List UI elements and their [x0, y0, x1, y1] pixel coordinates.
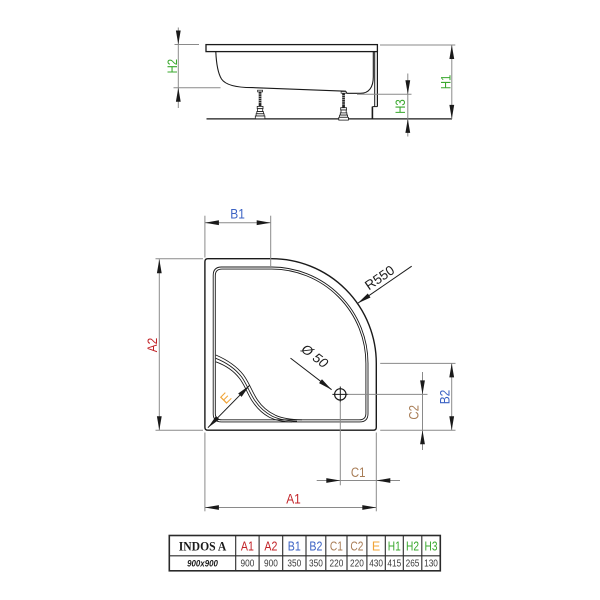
svg-text:A1: A1: [286, 492, 301, 507]
svg-text:A2: A2: [264, 540, 277, 554]
svg-text:900: 900: [264, 559, 278, 570]
svg-text:350: 350: [309, 559, 323, 570]
svg-text:415: 415: [387, 559, 401, 570]
svg-text:130: 130: [424, 559, 438, 570]
svg-text:A1: A1: [241, 540, 254, 554]
svg-text:350: 350: [287, 559, 301, 570]
svg-text:E: E: [372, 540, 380, 554]
svg-text:265: 265: [406, 559, 420, 570]
svg-text:900: 900: [241, 559, 255, 570]
svg-text:H1: H1: [438, 75, 453, 90]
svg-text:220: 220: [350, 559, 364, 570]
svg-text:H3: H3: [393, 99, 408, 114]
svg-text:B2: B2: [437, 390, 452, 405]
svg-text:220: 220: [330, 559, 344, 570]
svg-text:A2: A2: [145, 338, 160, 353]
svg-text:H3: H3: [425, 540, 438, 554]
svg-text:C1: C1: [351, 465, 366, 480]
svg-text:H2: H2: [406, 540, 419, 554]
svg-text:H2: H2: [165, 59, 180, 74]
svg-text:900x900: 900x900: [187, 559, 218, 570]
svg-text:C2: C2: [406, 405, 421, 420]
svg-text:C2: C2: [350, 540, 363, 554]
svg-text:INDOS A: INDOS A: [179, 540, 227, 554]
svg-text:B1: B1: [288, 540, 301, 554]
svg-text:B1: B1: [230, 207, 245, 222]
svg-text:430: 430: [369, 559, 383, 570]
svg-text:H1: H1: [388, 540, 401, 554]
svg-text:C1: C1: [330, 540, 343, 554]
svg-text:B2: B2: [309, 540, 322, 554]
